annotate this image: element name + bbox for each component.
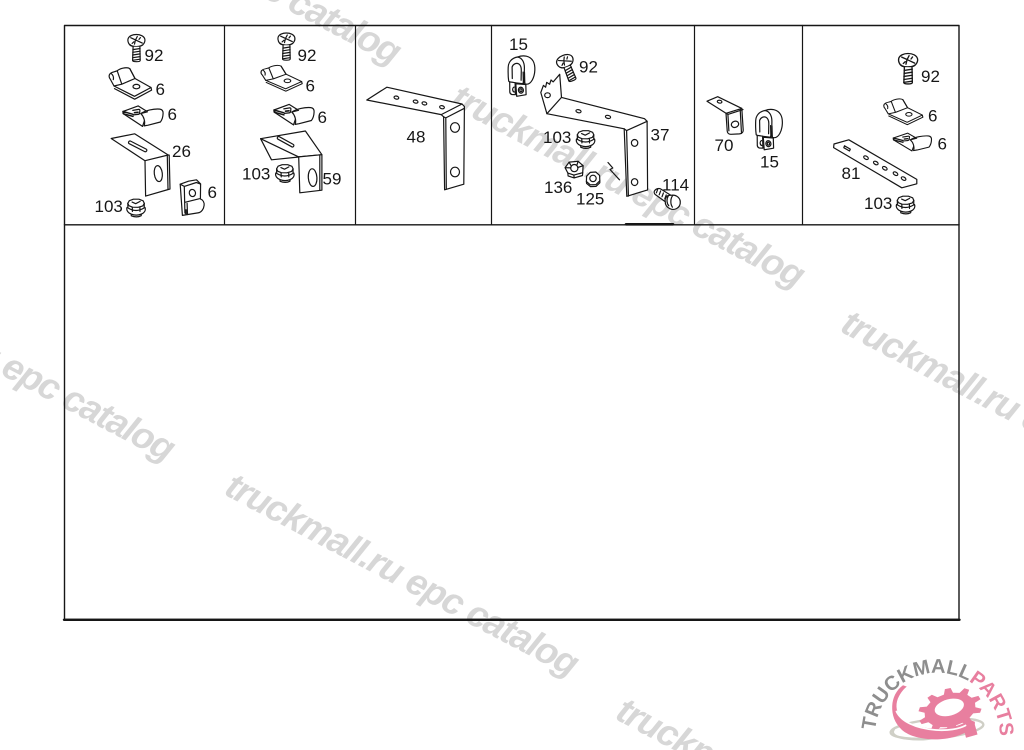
svg-text:92: 92 (298, 46, 317, 65)
svg-text:70: 70 (715, 136, 734, 155)
svg-text:103: 103 (543, 128, 571, 147)
svg-text:truckmall.ru epc catalog: truckmall.ru epc catalog (219, 465, 586, 684)
svg-text:114: 114 (662, 176, 689, 195)
svg-text:6: 6 (306, 77, 315, 96)
svg-text:15: 15 (509, 35, 528, 54)
svg-text:92: 92 (921, 67, 940, 86)
svg-text:37: 37 (651, 126, 670, 145)
svg-text:6: 6 (938, 135, 947, 154)
svg-text:59: 59 (323, 170, 342, 189)
svg-text:15: 15 (760, 153, 779, 172)
svg-text:6: 6 (168, 105, 177, 124)
svg-text:103: 103 (242, 165, 270, 184)
svg-text:81: 81 (842, 164, 861, 183)
svg-text:6: 6 (156, 80, 165, 99)
svg-text:26: 26 (172, 142, 191, 161)
svg-text:truckmall.ru epc catalog: truckmall.ru epc catalog (0, 250, 182, 469)
svg-text:125: 125 (576, 190, 604, 209)
svg-text:103: 103 (864, 194, 892, 213)
svg-text:6: 6 (318, 108, 327, 127)
svg-text:92: 92 (145, 46, 164, 65)
svg-text:6: 6 (208, 183, 217, 202)
svg-text:103: 103 (95, 197, 123, 216)
svg-text:6: 6 (928, 107, 937, 126)
svg-text:truckmall.ru epc catalog: truckmall.ru epc catalog (835, 302, 1024, 521)
svg-text:136: 136 (544, 178, 572, 197)
svg-text:48: 48 (407, 128, 426, 147)
svg-text:92: 92 (579, 58, 598, 77)
